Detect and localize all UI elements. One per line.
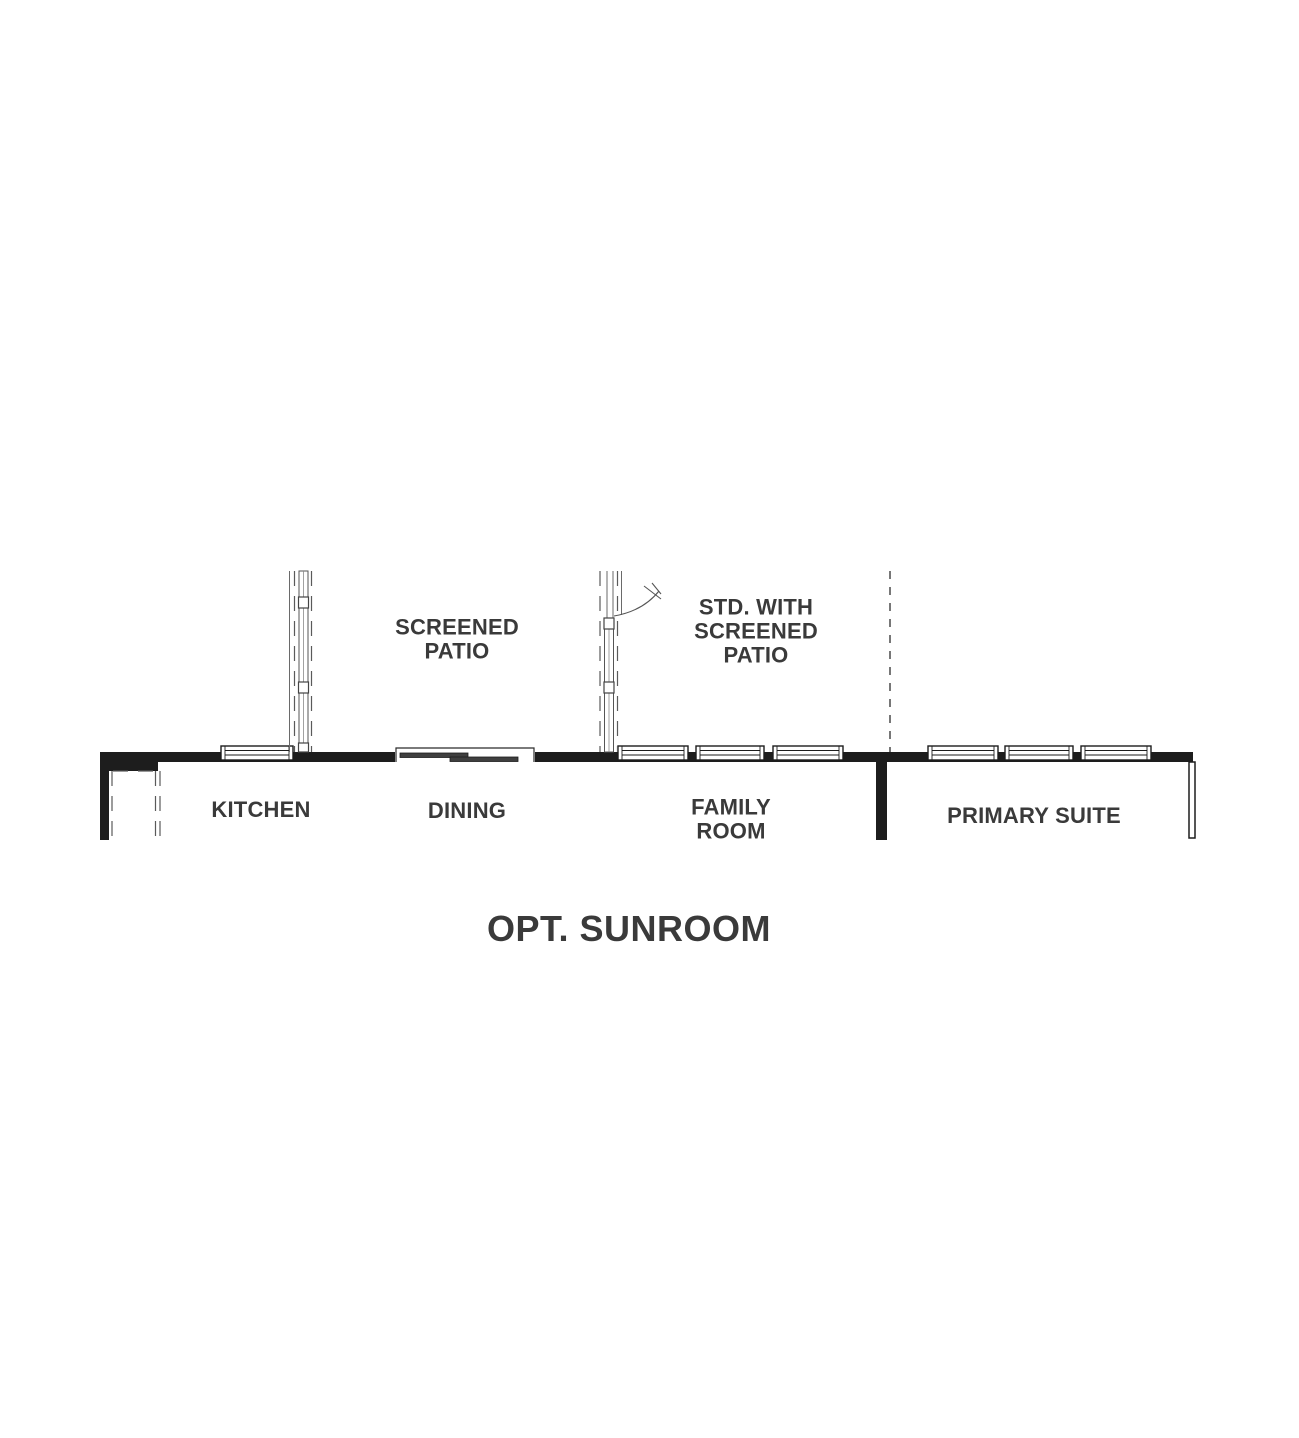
interior-wall-primary-suite [876,762,887,840]
window-primary-2 [1005,746,1073,760]
patio-door-arc [614,591,659,616]
right-exterior-wall [1189,762,1195,838]
window-family-3 [773,746,843,760]
room-label-dining: DINING [428,799,506,823]
floorplan-canvas: SCREENED PATIO STD. WITH SCREENED PATIO … [0,0,1299,1438]
window-primary-3 [1081,746,1151,760]
kitchen-opening-dashed [112,771,160,838]
corner-return [100,762,158,771]
room-label-screened-patio: SCREENED PATIO [395,615,519,663]
room-label-family-room: FAMILY ROOM [691,795,771,843]
window-kitchen [221,746,293,760]
floorplan-drawing [0,0,1299,1438]
window-family-2 [696,746,764,760]
patio-door-leaf [644,583,661,599]
window-family-1 [618,746,688,760]
plan-title: OPT. SUNROOM [487,908,771,950]
room-label-std-screened-patio: STD. WITH SCREENED PATIO [694,595,818,666]
left-exterior-wall [100,752,158,840]
window-primary-1 [928,746,998,760]
sliding-panel-2 [450,757,518,762]
screen-wall-right [600,571,661,752]
room-label-primary-suite: PRIMARY SUITE [947,804,1121,828]
room-label-kitchen: KITCHEN [211,798,310,822]
screen-wall-left [290,571,312,752]
sliding-door-dining [395,748,535,763]
